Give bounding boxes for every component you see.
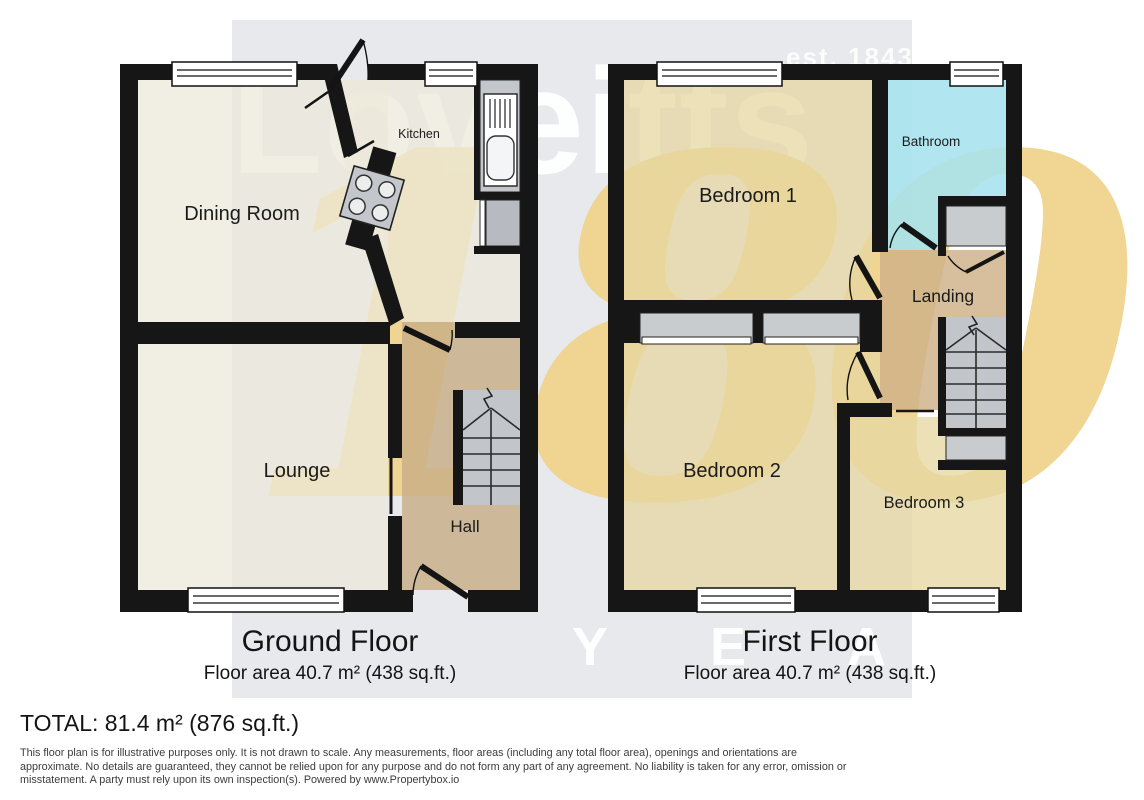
landing-label: Landing (912, 286, 974, 306)
ground-floor-caption: Ground Floor Floor area 40.7 m² (438 sq.… (110, 625, 550, 685)
bedroom1-label: Bedroom 1 (699, 185, 797, 207)
ground-floor-title: Ground Floor (110, 625, 550, 659)
dining-room-label: Dining Room (184, 203, 300, 225)
hall-label: Hall (450, 517, 479, 536)
first-floor-caption: First Floor Floor area 40.7 m² (438 sq.f… (590, 625, 1030, 685)
first-floor-area: Floor area 40.7 m² (438 sq.ft.) (590, 663, 1030, 685)
window (425, 62, 477, 86)
window (188, 588, 344, 612)
window (928, 588, 999, 612)
sink-basin-icon (487, 136, 514, 180)
disclaimer-line: approximate. No details are guaranteed, … (20, 761, 846, 775)
disclaimer-line: This floor plan is for illustrative purp… (20, 747, 846, 761)
bathroom-label: Bathroom (902, 134, 961, 149)
lounge-label: Lounge (264, 460, 331, 482)
landing-room (880, 250, 946, 410)
total-area: TOTAL: 81.4 m² (876 sq.ft.) (20, 710, 299, 737)
appliance-door (480, 200, 485, 246)
first-floor-title: First Floor (590, 625, 1030, 659)
cupboard (946, 436, 1006, 460)
window (697, 588, 795, 612)
counter-divider-wall (474, 80, 480, 192)
ground-stairs (463, 388, 520, 505)
bedroom2-label: Bedroom 2 (683, 460, 781, 482)
bedroom3-label: Bedroom 3 (884, 494, 965, 512)
cupboard (946, 206, 1006, 246)
first-floor-plan: Bedroom 1 Bathroom Landing Bedroom 2 Bed… (608, 62, 1022, 612)
landing-room-2 (946, 250, 1006, 317)
wall-stub (474, 192, 520, 200)
window (172, 62, 297, 86)
wall-stub (474, 246, 520, 254)
appliance (486, 200, 520, 246)
first-stairs (946, 316, 1006, 428)
ground-floor-area: Floor area 40.7 m² (438 sq.ft.) (110, 663, 550, 685)
kitchen-label: Kitchen (398, 127, 440, 141)
ground-floor-plan: Dining Room Kitchen Lounge Hall (120, 40, 538, 612)
floorplan-page: Loveitts est. 1843 180 Y E A R S (0, 0, 1144, 800)
window (657, 62, 782, 86)
window (950, 62, 1003, 86)
disclaimer-line: misstatement. A party must rely upon its… (20, 774, 846, 788)
built-in-wardrobes (640, 313, 860, 344)
disclaimer: This floor plan is for illustrative purp… (20, 747, 846, 788)
